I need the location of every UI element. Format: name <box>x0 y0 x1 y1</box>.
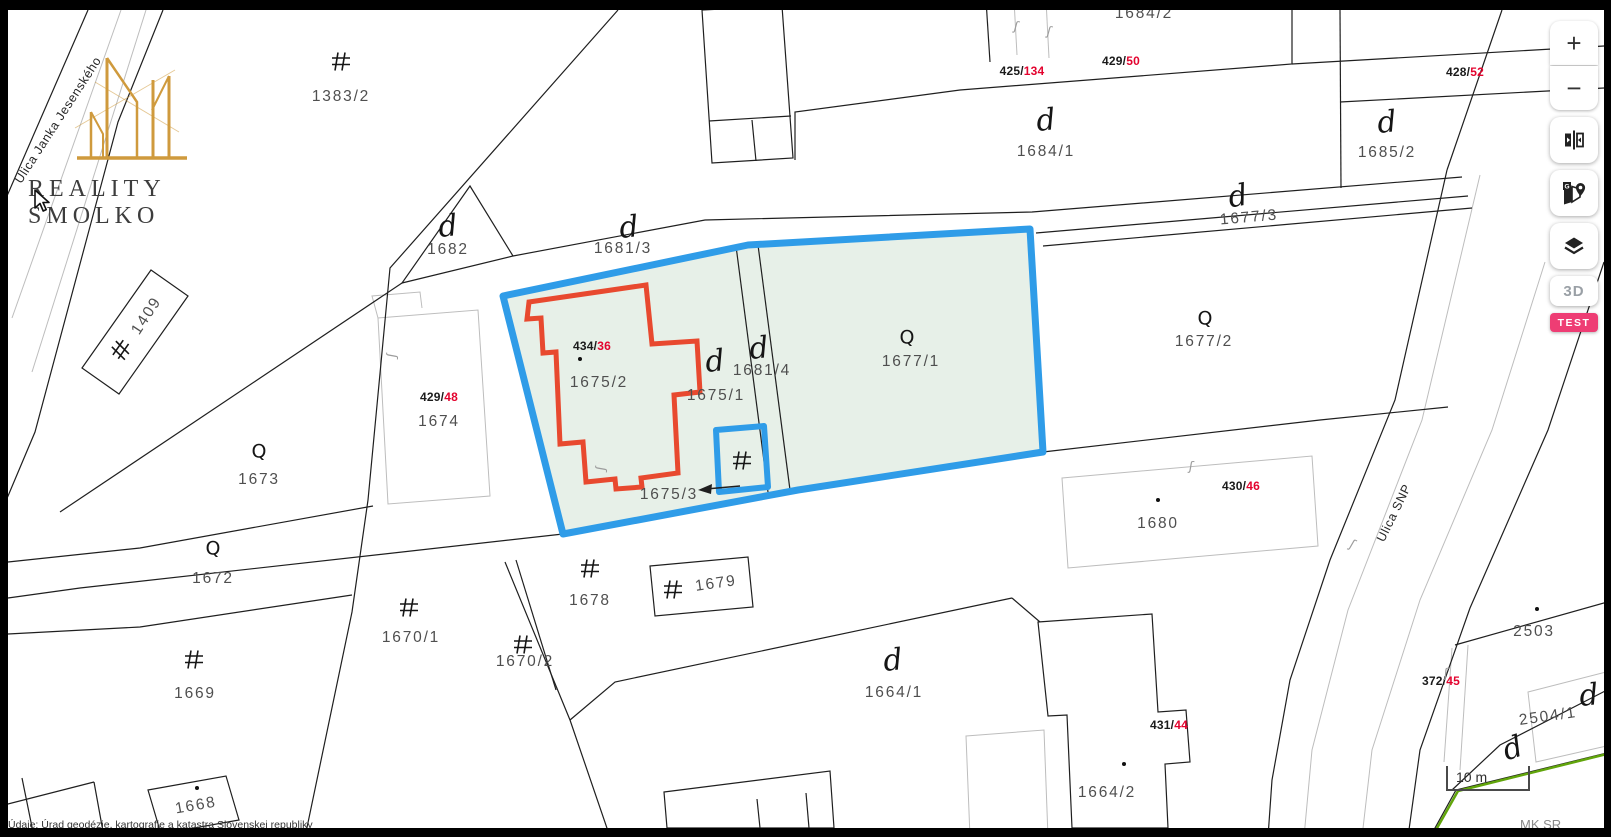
test-badge-label: TEST <box>1558 317 1591 329</box>
compare-maps-button[interactable] <box>1550 117 1598 163</box>
layers-button[interactable] <box>1550 223 1598 269</box>
zoom-out-button[interactable]: − <box>1550 66 1598 110</box>
google-maps-button[interactable]: G <box>1550 170 1598 216</box>
view-3d-button[interactable]: 3D <box>1550 276 1598 306</box>
map-application: 1383/21684/21684/11685/21677/316821681/3… <box>0 0 1611 837</box>
minus-icon: − <box>1566 75 1581 101</box>
scale-bar-label: 10 m <box>1448 766 1528 785</box>
view-3d-label: 3D <box>1563 283 1584 300</box>
zoom-in-button[interactable]: + <box>1550 21 1598 65</box>
scale-bar: 10 m <box>1446 766 1530 791</box>
brand-name: REALITY SMOLKO <box>28 176 300 230</box>
svg-text:G: G <box>1564 183 1569 190</box>
map-controls: + − G <box>1550 21 1598 332</box>
test-mode-badge[interactable]: TEST <box>1550 313 1598 332</box>
selected-parcels-fill <box>503 229 1043 534</box>
layers-icon <box>1562 234 1586 258</box>
mouse-cursor-icon <box>33 189 51 213</box>
frame-top <box>0 0 1611 10</box>
compare-maps-icon <box>1562 128 1586 152</box>
google-maps-icon: G <box>1561 180 1587 206</box>
plus-icon: + <box>1566 30 1581 56</box>
frame-right <box>1604 0 1611 837</box>
frame-left <box>0 0 8 837</box>
brand-logo-icon <box>55 38 225 178</box>
frame-bottom <box>0 828 1611 837</box>
zoom-controls: + − <box>1550 21 1598 110</box>
